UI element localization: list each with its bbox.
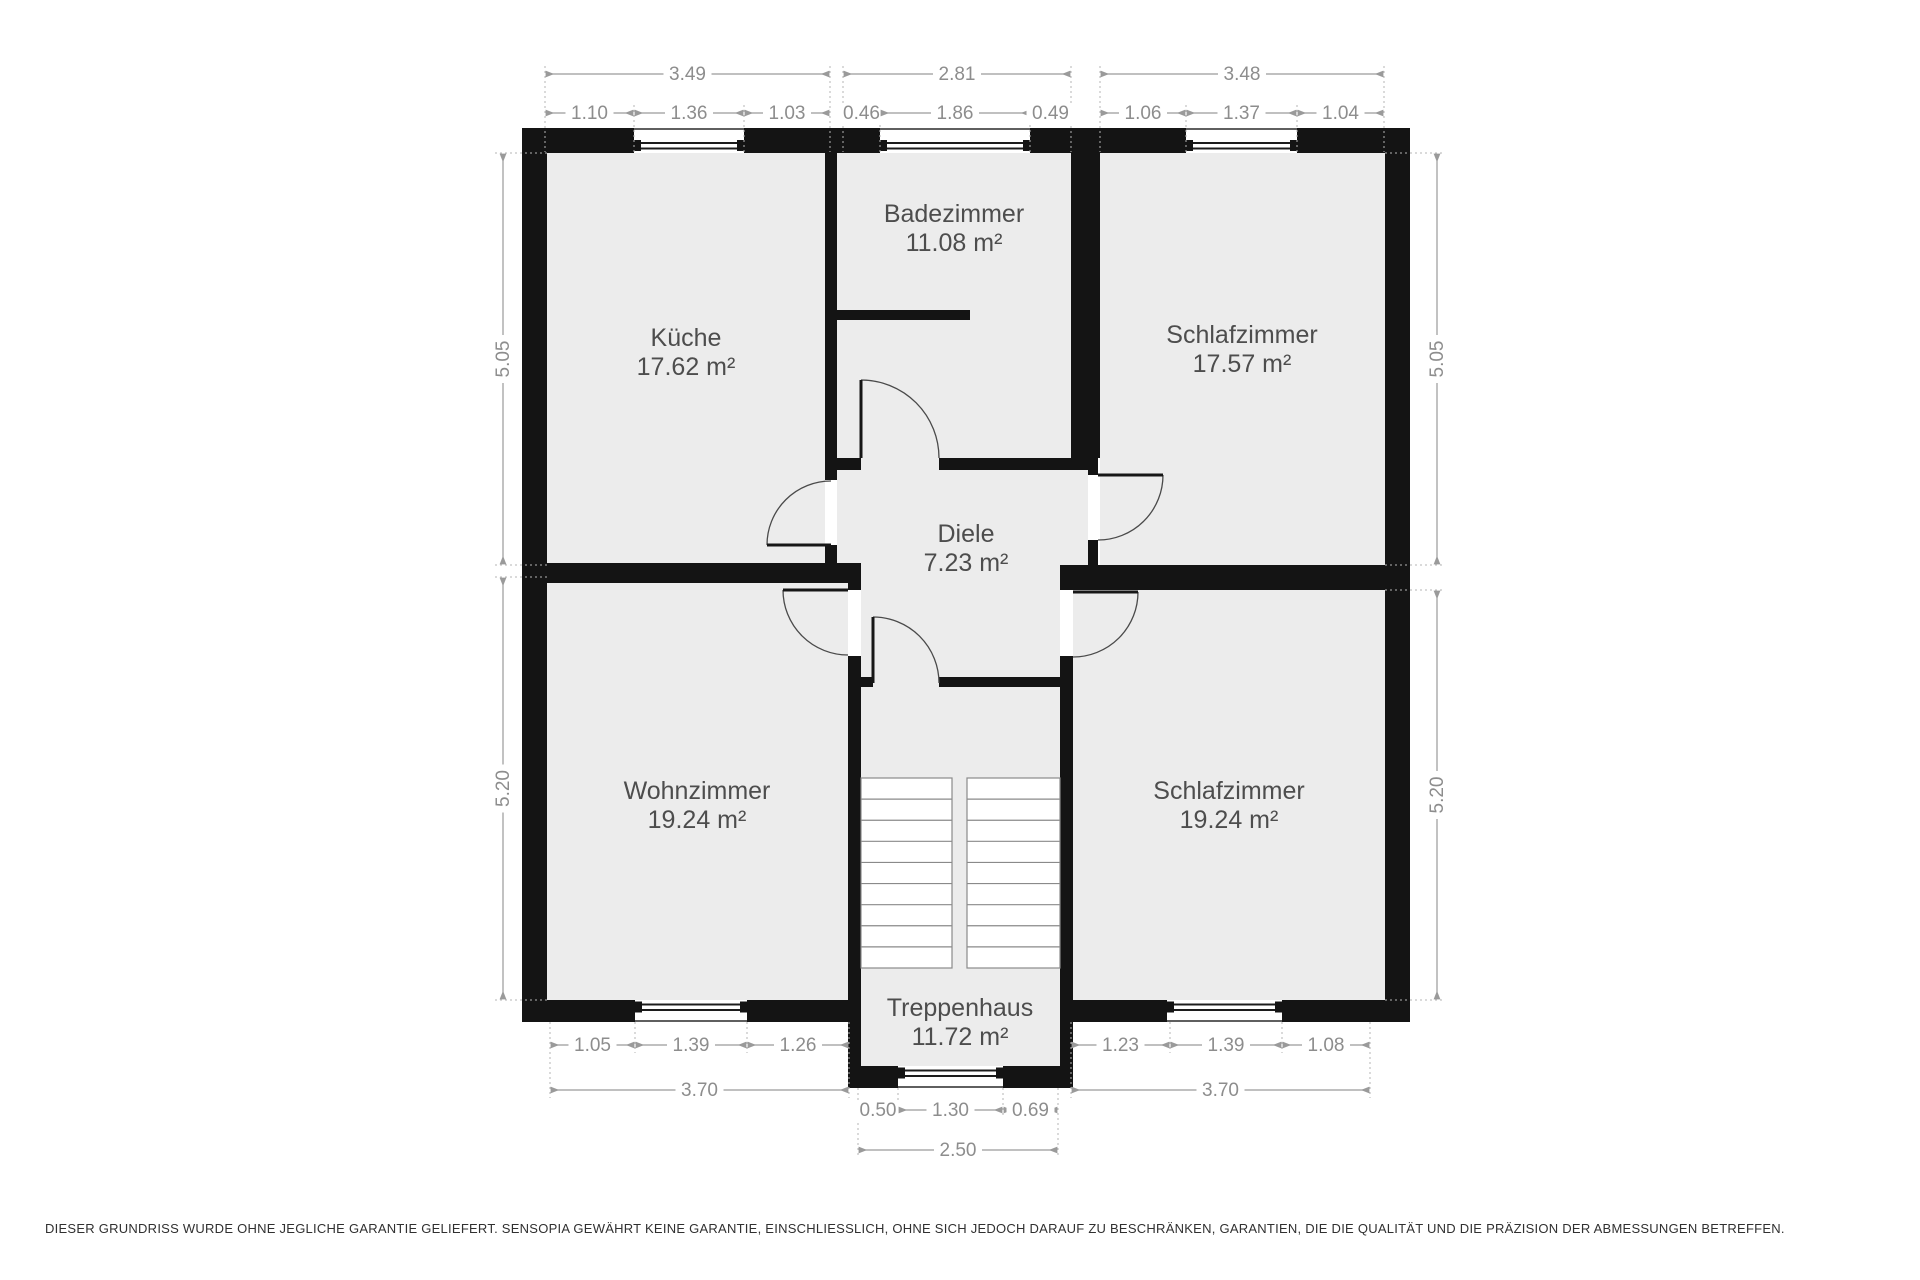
wall <box>1073 1000 1167 1022</box>
window <box>1186 128 1297 153</box>
wall <box>1060 565 1410 590</box>
dimension-label: 5.20 <box>1427 777 1448 814</box>
room-area: 7.23 m² <box>924 549 1009 577</box>
window-end-cap <box>634 140 641 151</box>
wall <box>837 310 970 320</box>
floor-plan-page: 3.492.813.481.101.361.030.461.860.491.06… <box>0 0 1920 1280</box>
stair-flight <box>967 778 1060 968</box>
window-end-cap <box>737 140 744 151</box>
dimension-label: 1.05 <box>574 1035 611 1056</box>
window-end-cap <box>1186 140 1193 151</box>
wall <box>861 677 873 687</box>
window <box>634 128 744 153</box>
dimension-label-group: 5.20 <box>1427 771 1448 819</box>
window-end-cap <box>1023 140 1030 151</box>
window-end-cap <box>898 1068 905 1079</box>
dimension-label: 1.03 <box>769 103 806 124</box>
stair-flight <box>861 778 952 968</box>
dimension-label: 1.86 <box>937 103 974 124</box>
window-end-cap <box>635 1002 642 1013</box>
wall <box>825 545 837 563</box>
room-name: Badezimmer <box>884 200 1024 228</box>
dimension-label: 5.05 <box>1427 341 1448 378</box>
wall <box>522 1000 635 1022</box>
dimension-label: 1.30 <box>932 1100 969 1121</box>
room-name: Küche <box>651 324 722 352</box>
wall <box>1071 128 1100 458</box>
room-name: Treppenhaus <box>887 994 1033 1022</box>
dimension-label: 0.50 <box>860 1100 897 1121</box>
room-name: Diele <box>938 520 995 548</box>
dimension-label: 0.49 <box>1032 103 1069 124</box>
dimension-label: 2.81 <box>939 64 976 85</box>
dimension-label-group: 5.05 <box>1427 335 1448 383</box>
wall <box>1088 540 1098 565</box>
wall <box>1003 1066 1073 1088</box>
wall <box>939 458 1098 470</box>
dimension-label-group: 5.05 <box>493 335 514 383</box>
dimension-label: 0.46 <box>843 103 880 124</box>
wall <box>1030 128 1186 153</box>
wall <box>744 128 880 153</box>
room-area: 17.57 m² <box>1193 350 1292 378</box>
wall <box>848 583 861 590</box>
dimension-label: 5.20 <box>493 770 514 807</box>
window <box>635 1000 747 1022</box>
window-end-cap <box>1290 140 1297 151</box>
room-label-kueche: Küche17.62 m² <box>637 324 736 381</box>
wall <box>522 563 861 583</box>
room-floor-badezimmer <box>837 153 1071 458</box>
dimension-label: 2.50 <box>940 1140 977 1161</box>
room-area: 17.62 m² <box>637 353 736 381</box>
dimension-label: 1.06 <box>1125 103 1162 124</box>
window <box>880 128 1030 153</box>
floor-plan: 3.492.813.481.101.361.030.461.860.491.06… <box>0 0 1920 1280</box>
dimension-label: 1.36 <box>671 103 708 124</box>
room-area: 19.24 m² <box>1180 806 1279 834</box>
window-end-cap <box>880 140 887 151</box>
room-name: Schlafzimmer <box>1153 777 1304 805</box>
dimension-label: 1.04 <box>1322 103 1359 124</box>
dimension-label: 3.49 <box>669 64 706 85</box>
room-area: 11.72 m² <box>912 1023 1009 1051</box>
window-end-cap <box>740 1002 747 1013</box>
dimension-label-group: 5.20 <box>493 765 514 813</box>
window-end-cap <box>996 1068 1003 1079</box>
dimension-label: 5.05 <box>493 341 514 378</box>
room-name: Wohnzimmer <box>624 777 771 805</box>
room-area: 19.24 m² <box>648 806 747 834</box>
dimension-label: 3.70 <box>681 1080 718 1101</box>
disclaimer-text: DIESER GRUNDRISS WURDE OHNE JEGLICHE GAR… <box>45 1221 1785 1236</box>
dimension-label: 1.10 <box>571 103 608 124</box>
dimension-label: 1.37 <box>1223 103 1260 124</box>
dimension-label: 1.08 <box>1308 1035 1345 1056</box>
dimension-label: 3.70 <box>1202 1080 1239 1101</box>
window <box>1167 1000 1282 1022</box>
wall <box>837 458 861 470</box>
wall <box>848 656 861 1088</box>
wall <box>939 677 1060 687</box>
room-name: Schlafzimmer <box>1166 321 1317 349</box>
dimension-label: 3.48 <box>1224 64 1261 85</box>
room-floor-diele <box>861 565 1060 687</box>
stair-flight-outline <box>967 778 1060 968</box>
wall <box>848 1066 898 1088</box>
window <box>898 1066 1003 1088</box>
dimension-label: 1.26 <box>780 1035 817 1056</box>
dimension-label: 1.23 <box>1102 1035 1139 1056</box>
wall <box>825 153 837 480</box>
window-end-cap <box>1275 1002 1282 1013</box>
room-area: 11.08 m² <box>906 229 1003 257</box>
dimension-label: 1.39 <box>673 1035 710 1056</box>
stair-flight-outline <box>861 778 952 968</box>
room-floors <box>547 153 1385 1066</box>
wall <box>1282 1000 1410 1022</box>
dimension-label: 1.39 <box>1208 1035 1245 1056</box>
dimension-label: 0.69 <box>1012 1100 1049 1121</box>
wall <box>747 1000 861 1022</box>
window-end-cap <box>1167 1002 1174 1013</box>
